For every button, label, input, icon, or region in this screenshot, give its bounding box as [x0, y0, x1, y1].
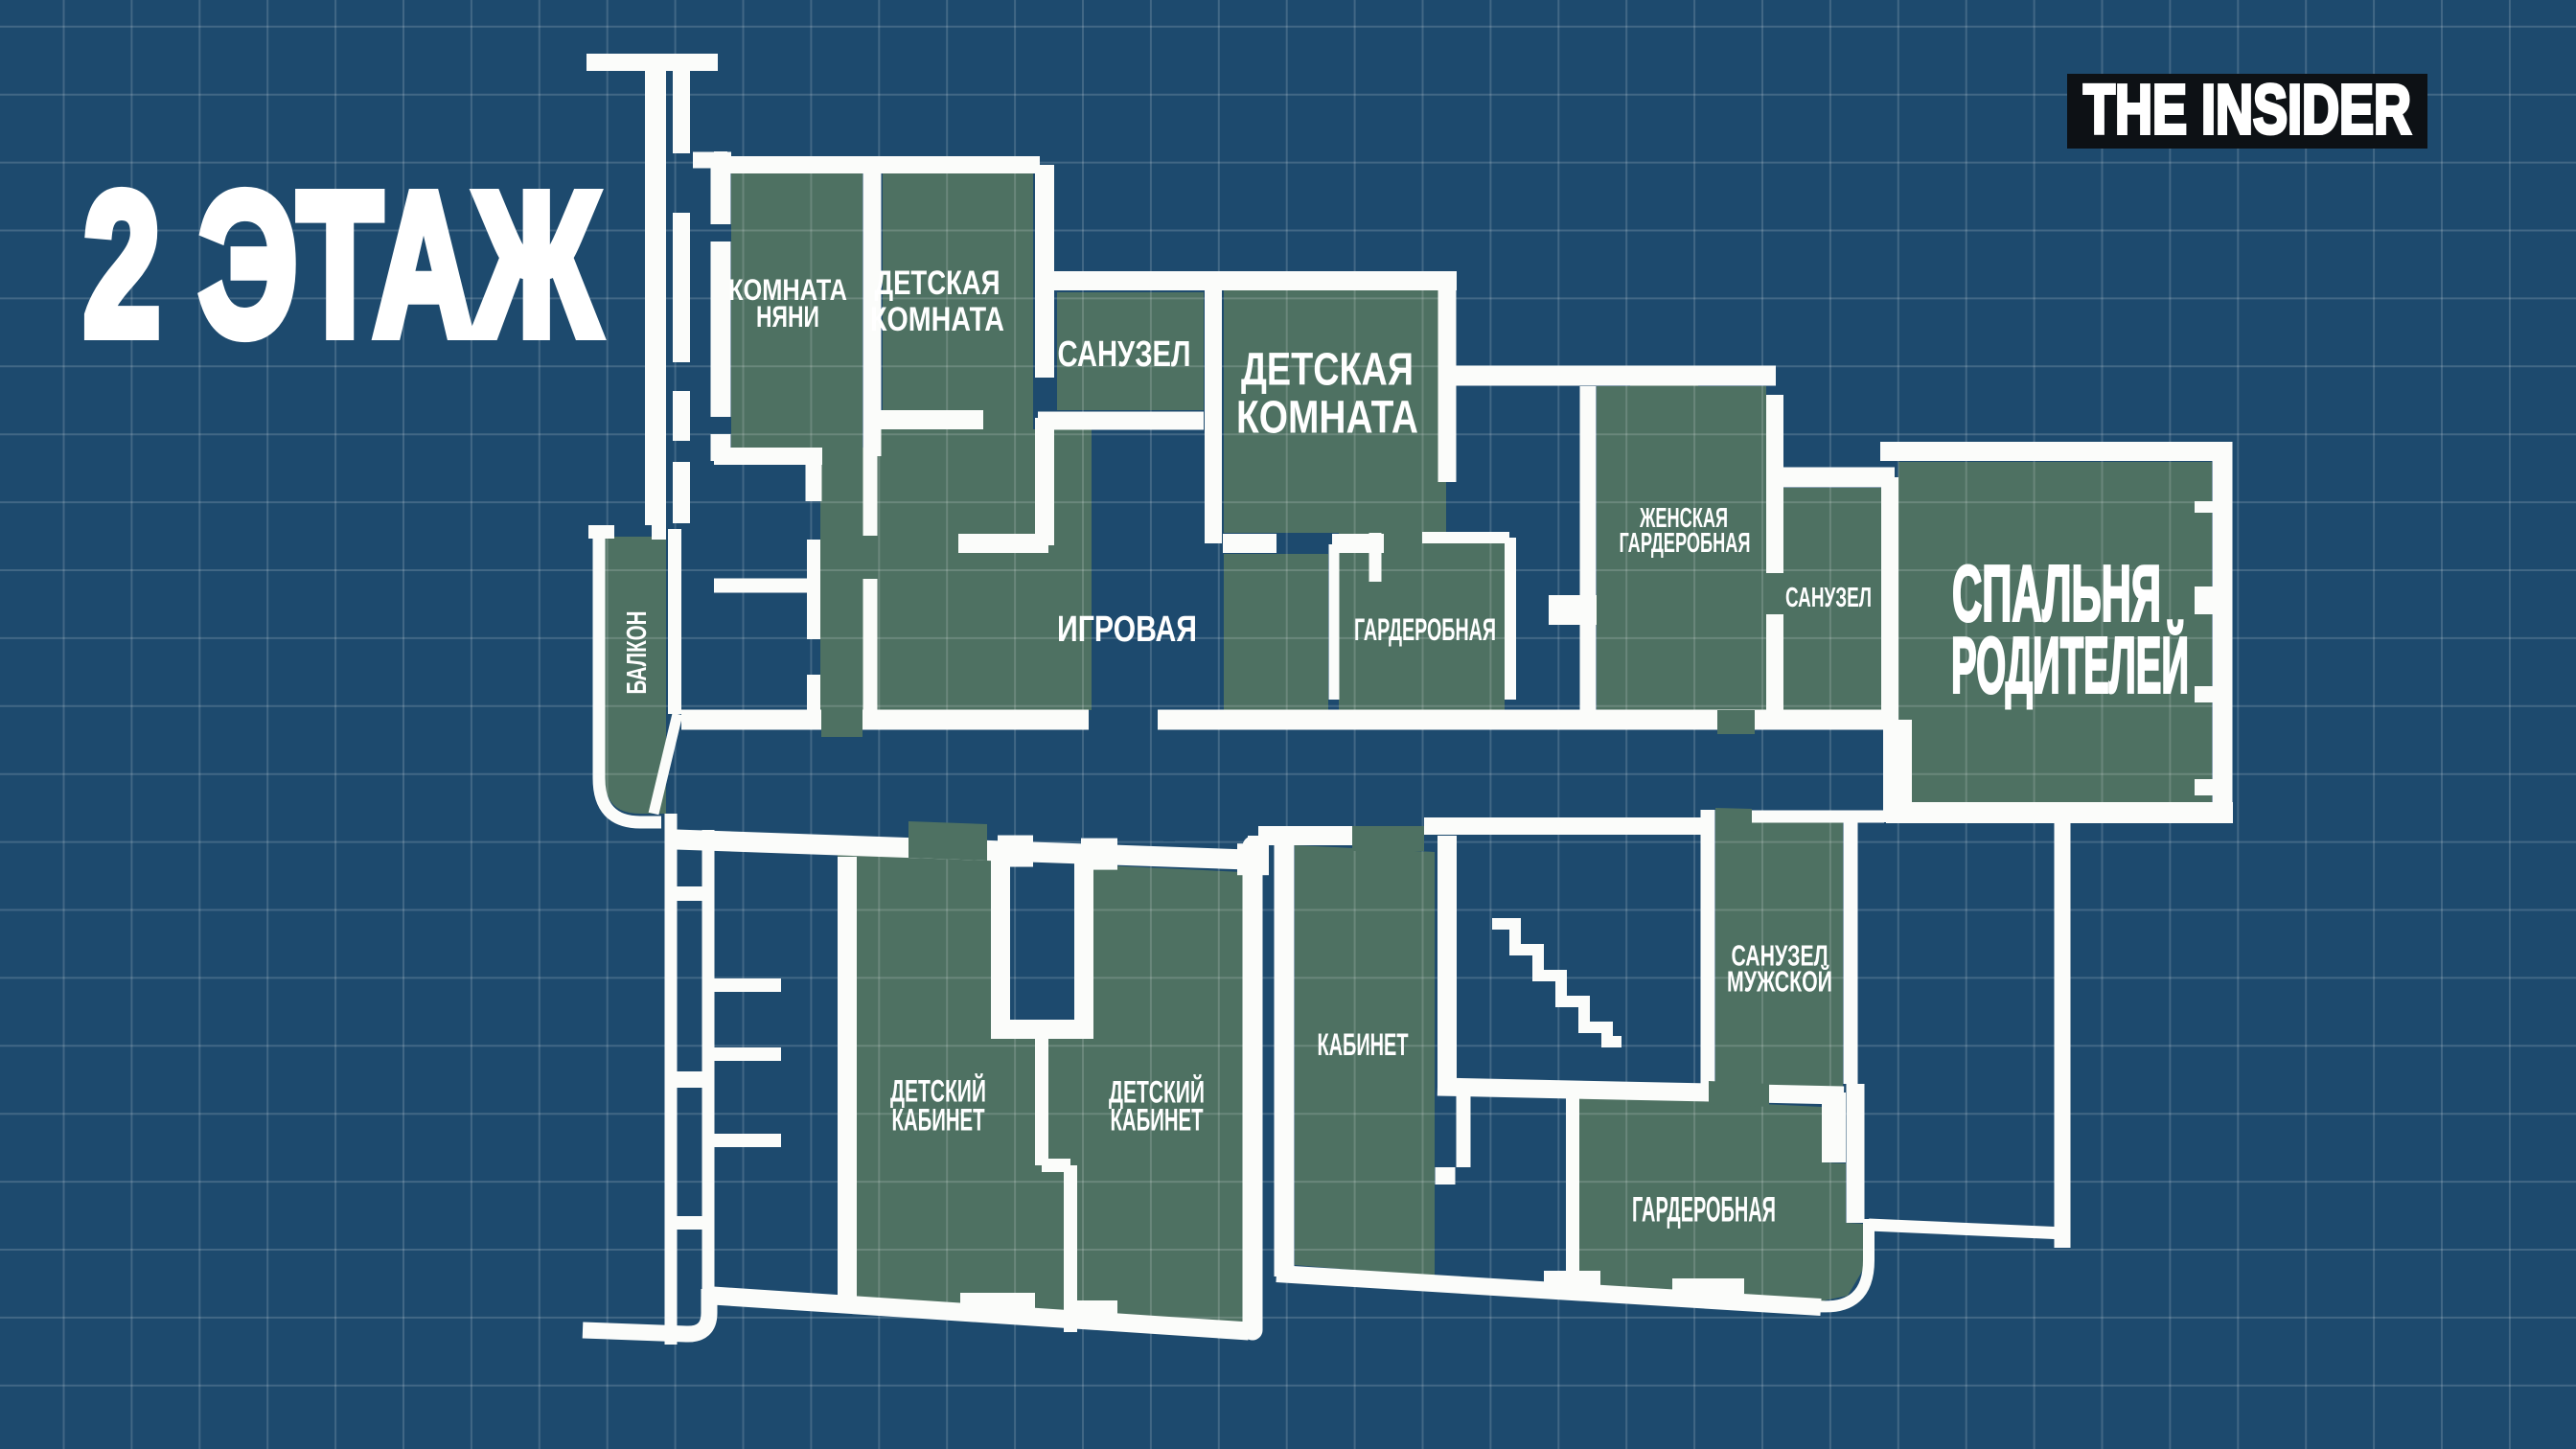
svg-text:ГАРДЕРОБНАЯ: ГАРДЕРОБНАЯ — [1354, 611, 1496, 647]
svg-text:РОДИТЕЛЕЙ: РОДИТЕЛЕЙ — [1951, 620, 2189, 710]
svg-text:КАБИНЕТ: КАБИНЕТ — [1111, 1101, 1204, 1137]
svg-text:МУЖСКОЙ: МУЖСКОЙ — [1727, 965, 1832, 998]
svg-text:КАБИНЕТ: КАБИНЕТ — [1318, 1027, 1409, 1062]
svg-text:САНУЗЕЛ: САНУЗЕЛ — [1785, 583, 1872, 613]
svg-text:ГАРДЕРОБНАЯ: ГАРДЕРОБНАЯ — [1620, 528, 1751, 559]
svg-text:БАЛКОН: БАЛКОН — [622, 611, 653, 695]
svg-text:THE INSIDER: THE INSIDER — [2083, 71, 2411, 149]
svg-text:НЯНИ: НЯНИ — [756, 300, 819, 333]
svg-text:КОМНАТА: КОМНАТА — [870, 301, 1004, 338]
svg-text:ИГРОВАЯ: ИГРОВАЯ — [1057, 609, 1197, 650]
svg-text:ГАРДЕРОБНАЯ: ГАРДЕРОБНАЯ — [1632, 1190, 1776, 1230]
svg-text:2 ЭТАЖ: 2 ЭТАЖ — [83, 150, 600, 378]
svg-text:ДЕТСКАЯ: ДЕТСКАЯ — [1241, 345, 1414, 396]
svg-text:ДЕТСКАЯ: ДЕТСКАЯ — [875, 264, 1000, 302]
svg-text:КОМНАТА: КОМНАТА — [1236, 393, 1418, 444]
svg-text:САНУЗЕЛ: САНУЗЕЛ — [1058, 334, 1191, 375]
svg-text:КАБИНЕТ: КАБИНЕТ — [892, 1101, 985, 1137]
